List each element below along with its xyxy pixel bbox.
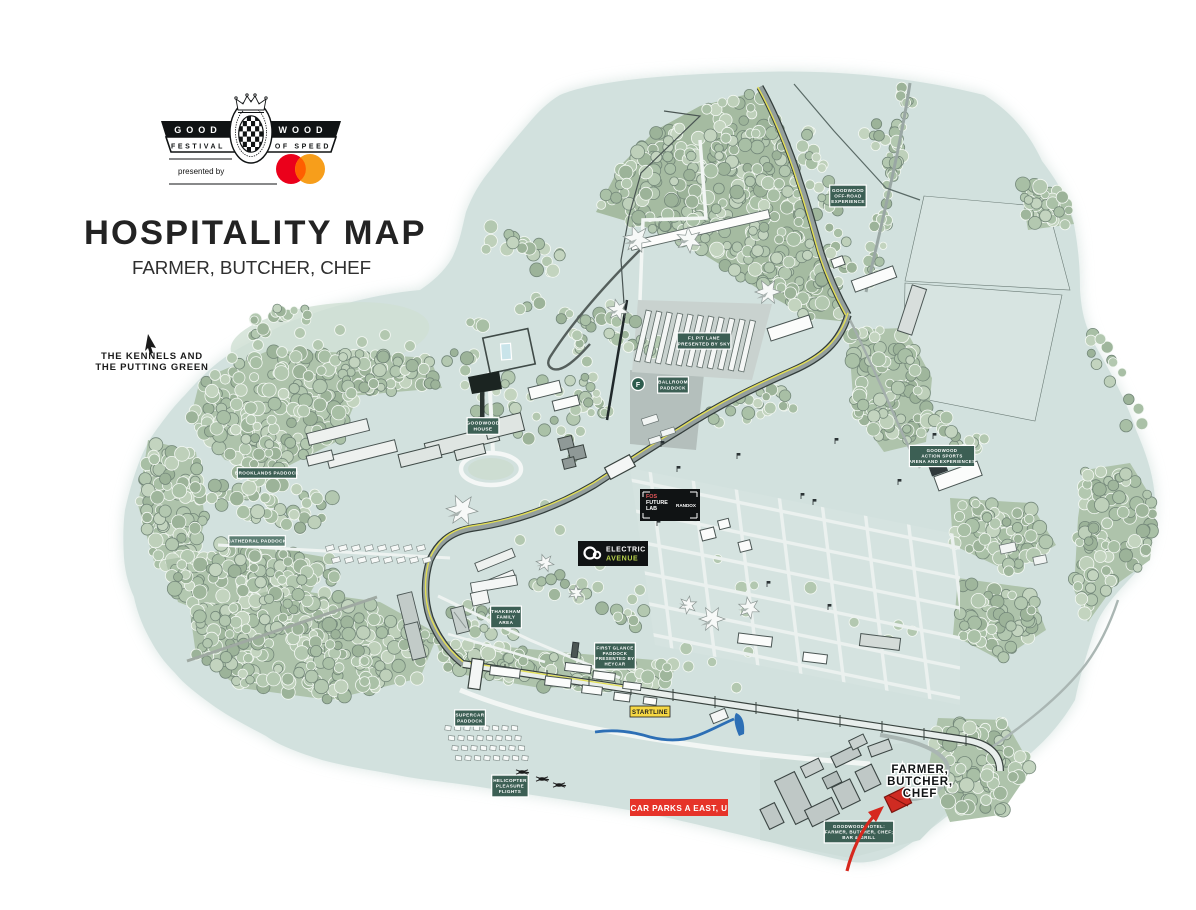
svg-text:FARMER, BUTCHER, CHEF: FARMER, BUTCHER, CHEF bbox=[132, 257, 371, 278]
svg-text:ACTION SPORTS: ACTION SPORTS bbox=[921, 453, 962, 458]
svg-text:BALLROOM: BALLROOM bbox=[658, 380, 688, 385]
svg-text:ARENA AND EXPERIENCES: ARENA AND EXPERIENCES bbox=[909, 459, 976, 464]
svg-text:THE PUTTING GREEN: THE PUTTING GREEN bbox=[95, 362, 208, 373]
svg-text:RANDOX: RANDOX bbox=[676, 503, 697, 508]
svg-text:F: F bbox=[636, 382, 641, 389]
svg-text:GOODWOOD: GOODWOOD bbox=[466, 421, 499, 427]
svg-text:THE KENNELS AND: THE KENNELS AND bbox=[101, 351, 203, 362]
svg-text:PADDOCK: PADDOCK bbox=[603, 651, 628, 656]
svg-text:PRESENTED BY: PRESENTED BY bbox=[596, 656, 635, 661]
svg-text:GOODWOOD HOTEL:: GOODWOOD HOTEL: bbox=[833, 824, 885, 829]
svg-text:HELICOPTER: HELICOPTER bbox=[493, 778, 527, 783]
svg-text:FIRST GLANCE: FIRST GLANCE bbox=[596, 646, 633, 651]
svg-text:presented by: presented by bbox=[178, 167, 224, 176]
svg-text:PADDOCK: PADDOCK bbox=[660, 385, 686, 390]
svg-text:GOODWOOD: GOODWOOD bbox=[927, 448, 958, 453]
svg-text:PRESENTED BY SKY: PRESENTED BY SKY bbox=[678, 341, 731, 346]
svg-text:FESTIVAL: FESTIVAL bbox=[171, 144, 225, 151]
svg-text:GOODWOOD: GOODWOOD bbox=[832, 188, 864, 193]
svg-text:FAMILY: FAMILY bbox=[497, 615, 516, 620]
svg-text:PADDOCK: PADDOCK bbox=[457, 718, 483, 723]
svg-text:STARTLINE: STARTLINE bbox=[632, 710, 668, 716]
svg-text:AVENUE: AVENUE bbox=[606, 556, 638, 563]
svg-text:WOOD: WOOD bbox=[279, 125, 328, 135]
svg-text:GOOD: GOOD bbox=[174, 125, 222, 135]
svg-text:OFF-ROAD: OFF-ROAD bbox=[834, 194, 862, 199]
svg-text:EXPERIENCE: EXPERIENCE bbox=[831, 199, 865, 204]
svg-text:HOUSE: HOUSE bbox=[473, 426, 492, 432]
svg-text:ELECTRIC: ELECTRIC bbox=[606, 547, 646, 554]
svg-text:CAR PARKS A EAST, U: CAR PARKS A EAST, U bbox=[631, 804, 728, 813]
svg-text:FLIGHTS: FLIGHTS bbox=[499, 789, 521, 794]
svg-text:SUPERCAR: SUPERCAR bbox=[456, 713, 485, 718]
svg-text:CHEF: CHEF bbox=[903, 788, 938, 800]
svg-text:BUTCHER,: BUTCHER, bbox=[887, 776, 953, 788]
svg-text:BROOKLANDS PADDOCK: BROOKLANDS PADDOCK bbox=[235, 471, 300, 476]
svg-text:HEYCAR: HEYCAR bbox=[605, 661, 626, 666]
svg-text:PLEASURE: PLEASURE bbox=[496, 784, 524, 789]
svg-text:THAKEHAM: THAKEHAM bbox=[491, 609, 520, 614]
svg-text:LAB: LAB bbox=[646, 506, 657, 512]
svg-text:CATHEDRAL PADDOCK: CATHEDRAL PADDOCK bbox=[227, 539, 286, 544]
svg-text:AREA: AREA bbox=[499, 620, 514, 625]
svg-text:HOSPITALITY MAP: HOSPITALITY MAP bbox=[84, 214, 427, 252]
svg-text:F1 PIT LANE: F1 PIT LANE bbox=[688, 336, 720, 341]
svg-text:OF SPEED: OF SPEED bbox=[275, 144, 331, 151]
svg-text:FARMER, BUTCHER, CHEF;: FARMER, BUTCHER, CHEF; bbox=[825, 829, 894, 834]
svg-text:FARMER,: FARMER, bbox=[891, 764, 948, 776]
